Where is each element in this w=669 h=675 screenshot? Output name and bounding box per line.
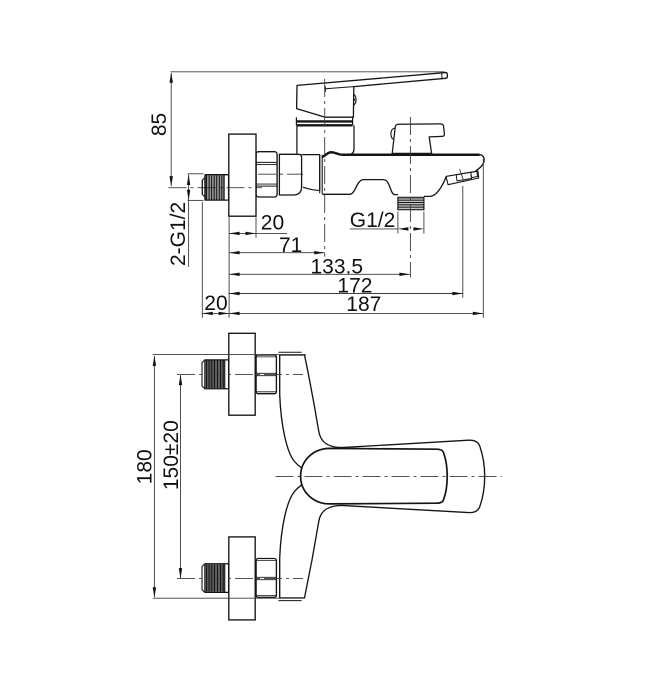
svg-text:20: 20 [261, 212, 284, 235]
svg-text:150±20: 150±20 [160, 420, 183, 490]
svg-text:71: 71 [279, 234, 302, 257]
svg-text:180: 180 [133, 449, 156, 484]
svg-text:187: 187 [346, 293, 381, 316]
svg-text:G1/2: G1/2 [350, 209, 396, 232]
svg-text:85: 85 [148, 113, 171, 136]
svg-text:2-G1/2: 2-G1/2 [167, 202, 190, 266]
svg-text:20: 20 [204, 292, 227, 315]
